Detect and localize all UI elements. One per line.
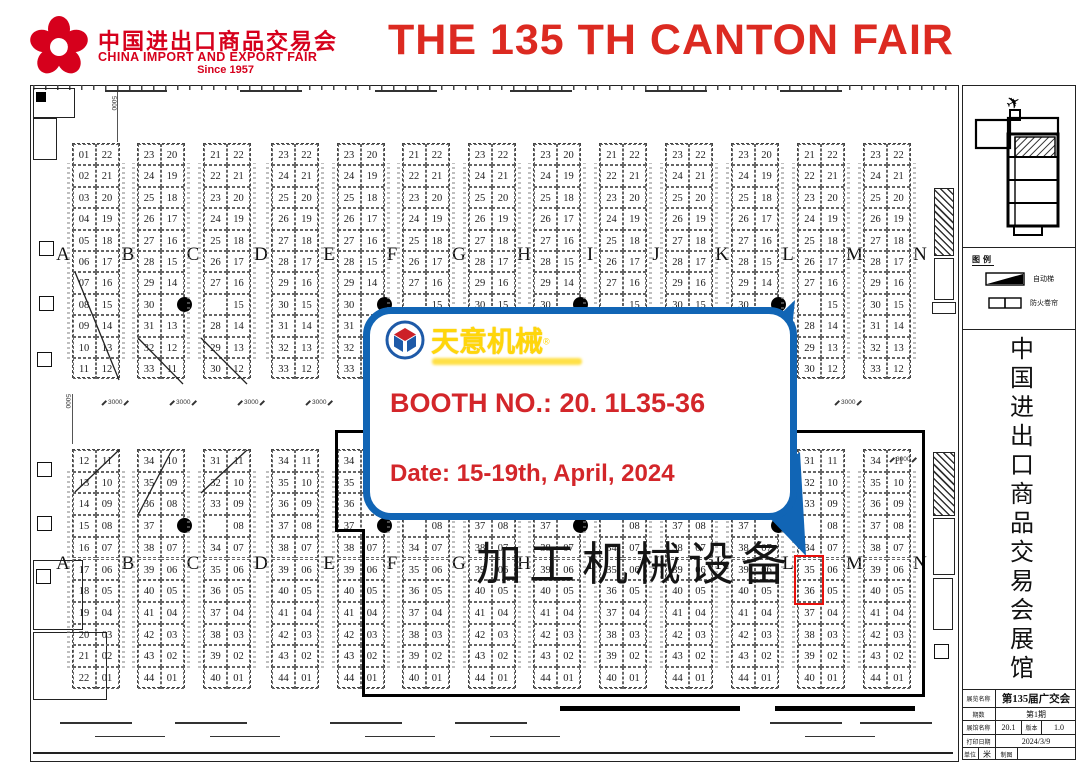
brand-row: 天意机械®: [385, 320, 550, 360]
hall-boundary-right: [922, 430, 925, 697]
tb-label: 期数: [962, 708, 996, 720]
titleblock-row: 期数 第1期: [962, 708, 1076, 721]
booth-number-text: BOOTH NO.: 20. 1L35-36: [390, 388, 705, 419]
tb-value: 第1期: [996, 708, 1076, 720]
drawing-title-block: 展览名称 第135届广交会 期数 第1期 展馆名称 20.1 版本 1.0 打印…: [962, 690, 1076, 760]
titleblock-row: 展览名称 第135届广交会: [962, 690, 1076, 708]
fire-shutter-icon: [988, 297, 1022, 309]
tianyi-cube-logo-icon: [385, 320, 425, 360]
legend-item-label: 防火卷帘: [1030, 298, 1058, 308]
legend-item-fireshutter: 防火卷帘: [988, 297, 1058, 309]
logo-since-line: Since 1957: [98, 64, 353, 76]
page-title: THE 135 TH CANTON FAIR: [388, 16, 954, 65]
tb-value: 米: [979, 748, 996, 760]
tb-value: 2024/3/9: [996, 735, 1076, 747]
tb-value: [1018, 748, 1076, 760]
titleblock-row: 单位 米 制图: [962, 748, 1076, 760]
venue-minimap-drawing: ✈: [968, 90, 1070, 242]
plane-icon: ✈: [1003, 91, 1025, 115]
hall-boundary-left-upper: [335, 430, 338, 531]
legend-item-escalator: 自动梯: [985, 272, 1054, 286]
tb-label: 版本: [1022, 721, 1042, 734]
hall-boundary-left-lower: [362, 529, 365, 697]
legend-title: 图例: [972, 254, 994, 266]
tb-value: 1.0: [1042, 721, 1076, 734]
tb-label: 展馆名称: [962, 721, 996, 734]
hall-boundary-step: [335, 529, 365, 532]
fair-date-text: Date: 15-19th, April, 2024: [390, 460, 675, 488]
escalator-icon: [985, 272, 1025, 286]
tb-value: 第135届广交会: [996, 690, 1076, 707]
tb-label: 展览名称: [962, 690, 996, 707]
titleblock-row: 打印日期 2024/3/9: [962, 735, 1076, 748]
tb-label: 制图: [996, 748, 1018, 760]
highlighted-booth-35-36[interactable]: [794, 555, 824, 605]
brand-tagline: [432, 358, 582, 365]
tb-value: 20.1: [996, 721, 1022, 734]
titleblock-row: 展馆名称 20.1 版本 1.0: [962, 721, 1076, 735]
logo-english-name: CHINA IMPORT AND EXPORT FAIR: [98, 50, 317, 64]
tb-label: 单位: [962, 748, 979, 760]
canton-fair-flower-logo: [26, 14, 92, 82]
sidebar-vertical-title-box: 中国进出口商品交易会展馆: [962, 330, 1076, 690]
registered-mark: ®: [543, 337, 550, 347]
brand-name: 天意机械: [431, 327, 543, 358]
venue-name-vertical: 中国进出口商品交易会展馆: [1002, 336, 1037, 684]
tb-label: 打印日期: [962, 735, 996, 747]
hall-boundary-bottom: [362, 694, 925, 697]
legend-item-label: 自动梯: [1033, 274, 1054, 284]
